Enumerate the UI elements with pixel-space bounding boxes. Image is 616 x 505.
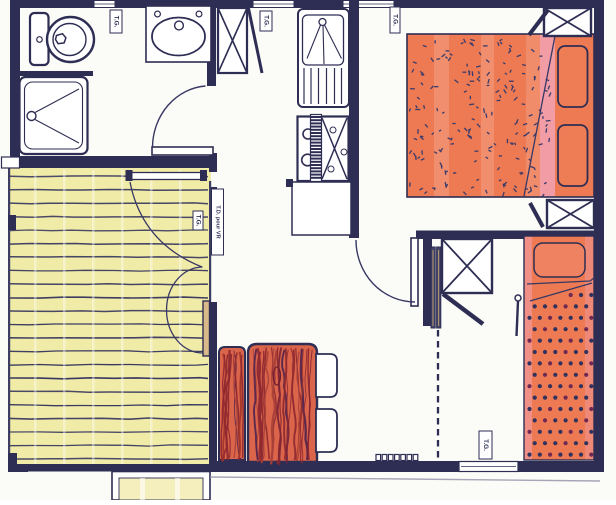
- svg-text:T.G.: T.G.: [482, 439, 489, 451]
- svg-text:T.G.: T.G.: [392, 14, 399, 26]
- svg-text:T.G.: T.G.: [195, 215, 202, 227]
- svg-text:T.D. pour VR: T.D. pour VR: [215, 205, 221, 238]
- svg-text:T.G.: T.G.: [263, 15, 270, 27]
- svg-text:T.G.: T.G.: [113, 16, 120, 28]
